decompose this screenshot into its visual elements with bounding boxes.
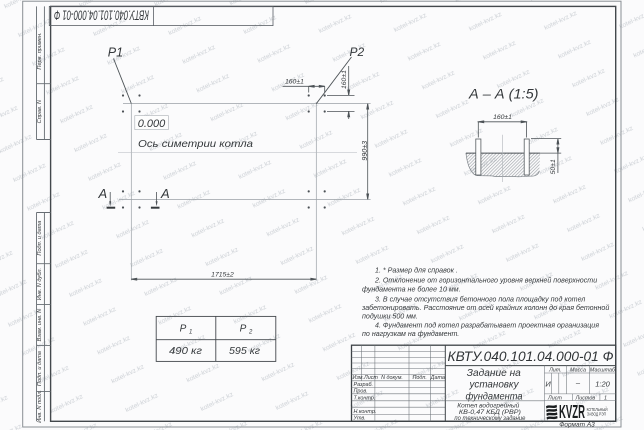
svg-text:P: P (240, 324, 247, 335)
svg-text:И: И (545, 380, 551, 389)
svg-text:KVZR: KVZR (559, 402, 585, 422)
svg-text:по нагрузкам на фундамент.: по нагрузкам на фундамент. (362, 330, 459, 338)
svg-text:4. Фундамент под котел разраба: 4. Фундамент под котел разрабатывает про… (375, 321, 599, 329)
svg-text:Масштаб: Масштаб (590, 367, 616, 373)
svg-text:1715±2: 1715±2 (211, 272, 234, 279)
svg-text:Справ. N: Справ. N (37, 99, 43, 123)
svg-text:Н.контр.: Н.контр. (354, 409, 377, 415)
svg-text:КВТУ.040.101.04.000-01 Ф: КВТУ.040.101.04.000-01 Ф (448, 348, 614, 364)
svg-text:P: P (180, 324, 187, 335)
svg-text:Формат А3: Формат А3 (559, 422, 595, 429)
svg-text:по техническому задание: по техническому задание (454, 416, 526, 422)
svg-text:Подп. и дата: Подп. и дата (37, 351, 43, 386)
svg-text:Подп.: Подп. (413, 375, 427, 381)
svg-text:Т.контр.: Т.контр. (354, 396, 376, 402)
svg-text:подушки 500 мм.: подушки 500 мм. (362, 313, 418, 321)
svg-text:Лит.: Лит. (548, 367, 562, 373)
svg-text:Листов: Листов (575, 395, 596, 401)
svg-text:160±1: 160±1 (285, 79, 304, 86)
svg-text:1: 1 (189, 330, 192, 336)
svg-text:А: А (160, 186, 170, 201)
svg-text:Лист: Лист (547, 395, 562, 401)
svg-text:P1: P1 (108, 46, 123, 60)
svg-text:Котел водогрейный: Котел водогрейный (457, 403, 520, 410)
svg-text:990±3: 990±3 (360, 141, 369, 161)
svg-text:1. * Размер для справок .: 1. * Размер для справок . (375, 267, 458, 275)
svg-text:установку: установку (469, 378, 520, 390)
svg-text:2: 2 (248, 330, 253, 336)
svg-text:Ось симетрии котла: Ось симетрии котла (138, 138, 253, 150)
svg-text:Инв. N подл.: Инв. N подл. (37, 390, 43, 423)
svg-text:фундамента не более 10 мм.: фундамента не более 10 мм. (362, 285, 461, 293)
svg-text:Дата: Дата (430, 375, 445, 381)
svg-text:Масса: Масса (570, 367, 586, 373)
svg-text:КВТУ.040.101.04.000-01 Ф: КВТУ.040.101.04.000-01 Ф (54, 8, 149, 24)
svg-text:Утв.: Утв. (353, 416, 366, 422)
svg-text:Задание на: Задание на (467, 367, 521, 379)
svg-text:Взам. инв. N: Взам. инв. N (37, 308, 43, 342)
svg-text:1:20: 1:20 (595, 380, 610, 389)
svg-text:фундамента: фундамента (466, 390, 523, 402)
svg-text:160±1: 160±1 (493, 114, 512, 121)
svg-text:P2: P2 (350, 45, 365, 59)
svg-text:ЗАВОД РЭП: ЗАВОД РЭП (587, 411, 606, 416)
svg-text:0.000: 0.000 (138, 118, 166, 130)
svg-text:–: – (575, 379, 581, 388)
svg-text:Перв. примен.: Перв. примен. (37, 32, 43, 69)
svg-text:160±1: 160±1 (341, 70, 348, 89)
svg-text:1: 1 (604, 395, 607, 401)
svg-text:забетонировать. Расстояние от: забетонировать. Расстояние от осей крайн… (361, 304, 609, 312)
svg-text:Разраб.: Разраб. (354, 382, 374, 388)
svg-text:Пров.: Пров. (354, 389, 368, 395)
svg-text:Подп. и дата: Подп. и дата (37, 221, 43, 256)
svg-text:Изм.Лист: Изм.Лист (353, 375, 379, 381)
svg-text:А: А (98, 186, 108, 201)
svg-text:А – А (1:5): А – А (1:5) (468, 86, 539, 102)
svg-text:КВ-0,47 КБД (РВР): КВ-0,47 КБД (РВР) (459, 410, 521, 416)
svg-text:595 кг: 595 кг (229, 345, 260, 357)
svg-text:2. Отклонение от горизонтально: 2. Отклонение от горизонтального уровня … (374, 277, 597, 285)
svg-text:N докум.: N докум. (381, 375, 403, 381)
svg-text:Инв. N дубл.: Инв. N дубл. (37, 268, 43, 300)
svg-text:490 кг: 490 кг (169, 345, 202, 357)
svg-text:3. В случае отсутствия бетонно: 3. В случае отсутствия бетонного пола пл… (375, 295, 585, 303)
svg-text:50±1: 50±1 (550, 159, 557, 174)
